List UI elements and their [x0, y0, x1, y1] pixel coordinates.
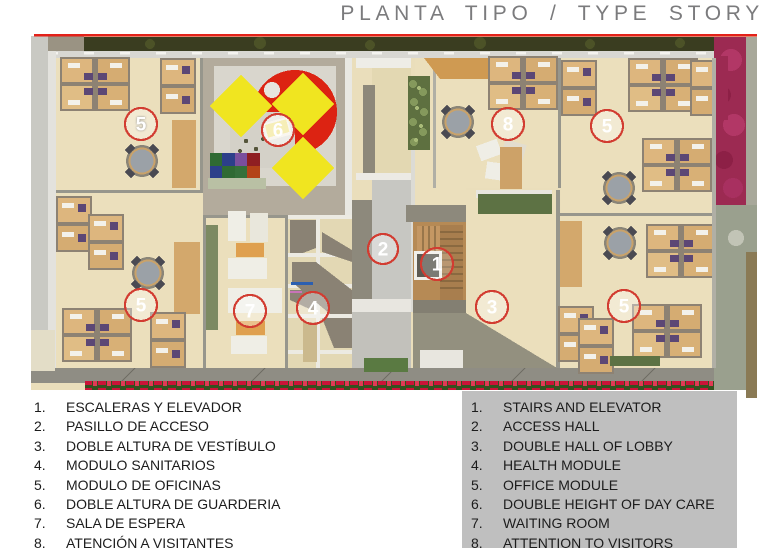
svg-text:5: 5	[136, 115, 147, 136]
svg-text:3: 3	[487, 298, 498, 319]
svg-text:6: 6	[273, 121, 284, 142]
svg-text:5: 5	[602, 117, 613, 138]
svg-text:7: 7	[245, 302, 256, 323]
svg-text:2: 2	[378, 240, 389, 261]
svg-text:5: 5	[619, 297, 630, 318]
svg-text:1: 1	[432, 255, 443, 276]
svg-text:5: 5	[136, 296, 147, 317]
svg-text:8: 8	[503, 115, 514, 136]
svg-text:4: 4	[308, 299, 319, 320]
